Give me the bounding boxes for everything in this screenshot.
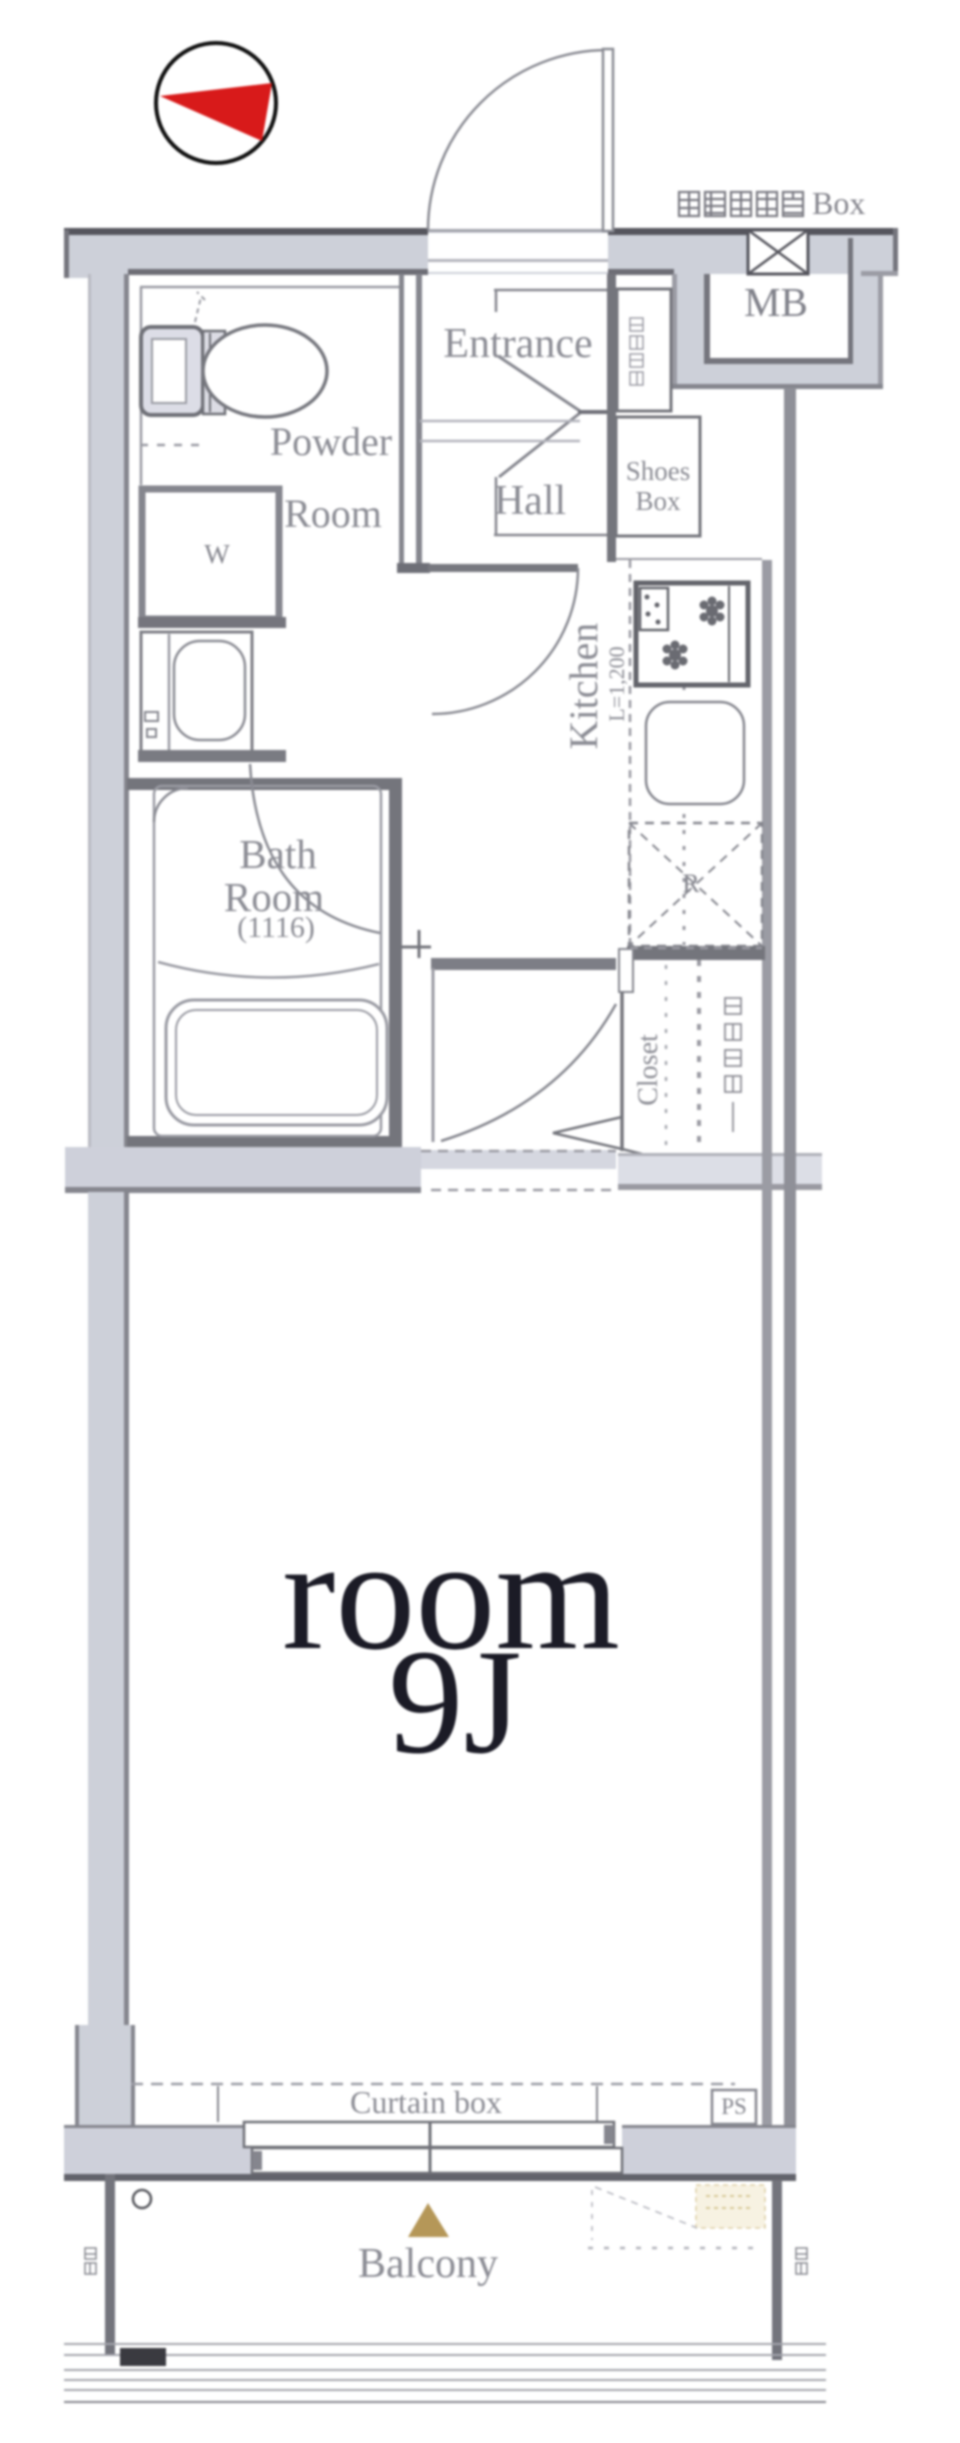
svg-text:Box: Box [812, 185, 865, 221]
svg-text:9J: 9J [388, 1619, 521, 1785]
svg-text:Box: Box [635, 486, 681, 516]
svg-text:Kitchen: Kitchen [561, 623, 606, 750]
svg-text:Bath: Bath [239, 831, 316, 877]
svg-text:Balcony: Balcony [358, 2241, 498, 2287]
svg-text:Hall: Hall [494, 478, 566, 524]
svg-text:MB: MB [744, 279, 808, 325]
svg-text:W: W [204, 539, 230, 569]
svg-text:Room: Room [284, 491, 382, 536]
svg-text:Powder: Powder [270, 419, 392, 464]
svg-text:Shoes: Shoes [626, 456, 691, 486]
svg-text:PS: PS [721, 2094, 747, 2119]
svg-text:(1116): (1116) [237, 911, 315, 944]
svg-text:Entrance: Entrance [443, 321, 592, 367]
svg-text:R: R [682, 869, 700, 898]
svg-text:Curtain box: Curtain box [350, 2084, 502, 2120]
svg-text:L=1,200: L=1,200 [604, 646, 629, 721]
svg-text:Closet: Closet [633, 1034, 664, 1106]
